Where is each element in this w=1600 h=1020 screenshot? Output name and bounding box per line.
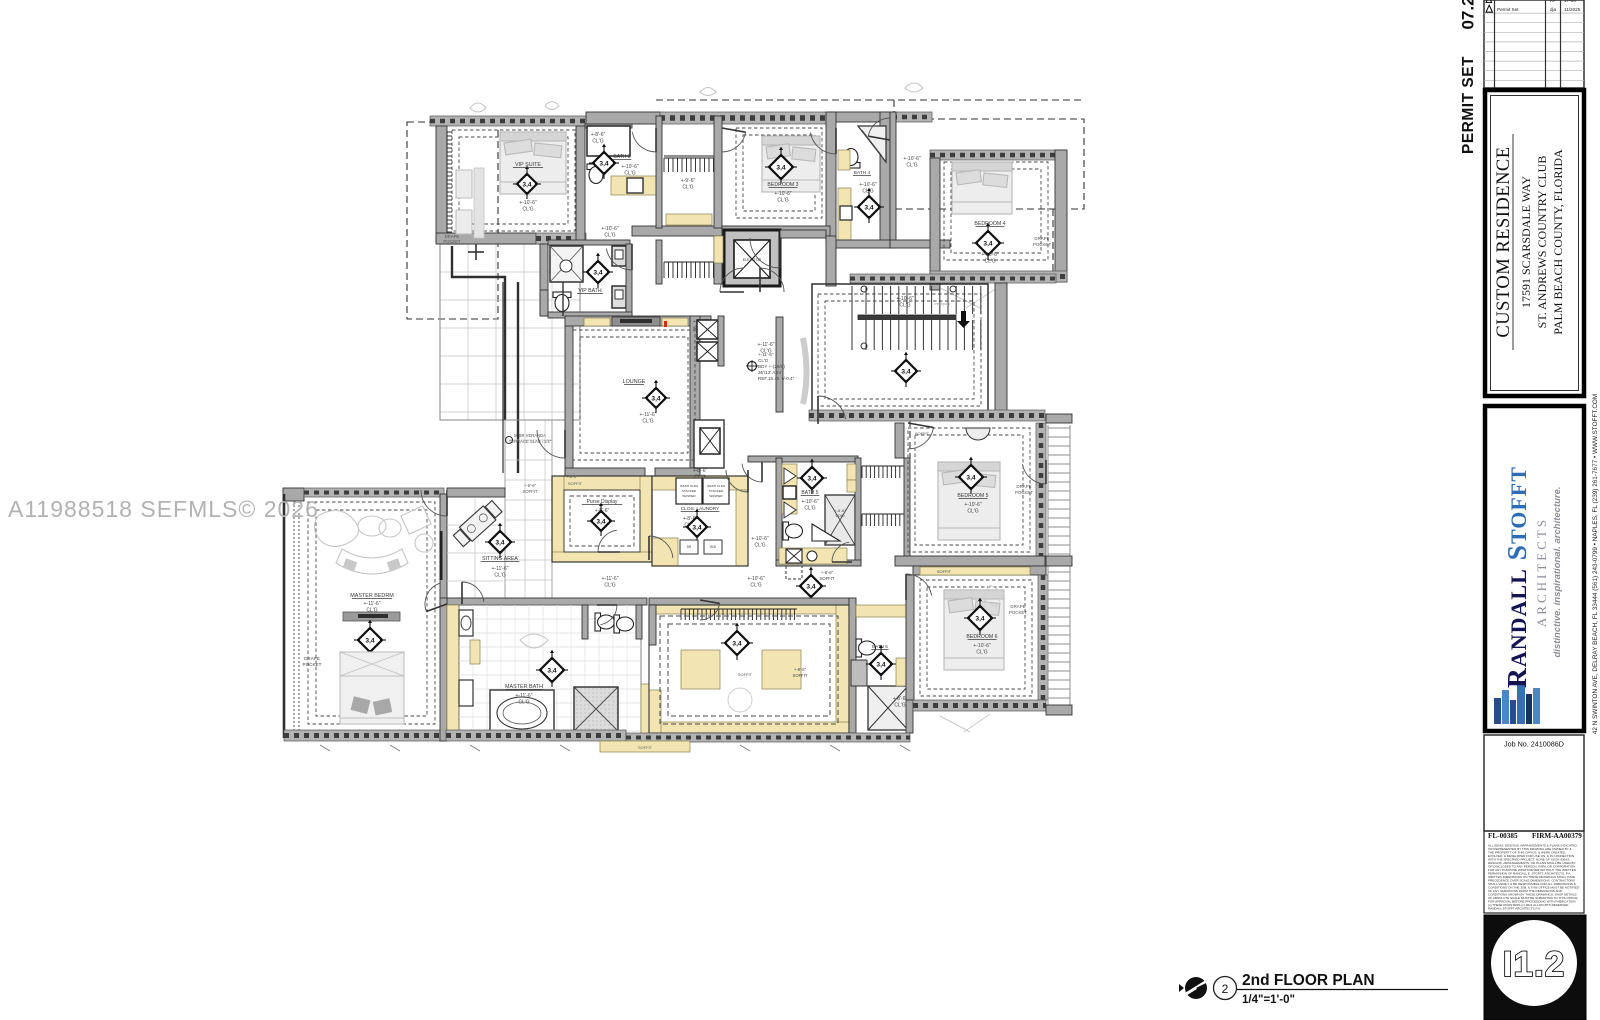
svg-text:3,4: 3,4 [876,661,885,668]
svg-text:2nd FLOOR PLAN: 2nd FLOOR PLAN [1242,972,1375,989]
svg-text:VOID: VOID [835,514,845,518]
svg-text:BEDROOM 6: BEDROOM 6 [966,634,997,640]
svg-text:CL'G: CL'G [899,303,910,309]
svg-text:WASH CLDS: WASH CLDS [680,484,698,488]
svg-text:+-10'-6": +-10'-6" [621,164,639,170]
svg-text:POCKET: POCKET [1033,242,1051,247]
svg-text:3,4: 3,4 [596,518,605,525]
svg-text:PALM BEACH COUNTY, FLORIDA: PALM BEACH COUNTY, FLORIDA [1551,149,1565,335]
svg-text:CL'G: CL'G [682,185,693,191]
svg-text:CL'G: CL'G [522,207,533,213]
svg-text:3,4: 3,4 [495,539,504,546]
svg-text:CL'G: CL'G [984,259,995,265]
svg-text:CL'G: CL'G [754,543,765,549]
svg-text:3,4: 3,4 [901,368,910,375]
svg-text:+-8'-6": +-8'-6" [893,696,908,702]
svg-text:CL'G: CL'G [494,573,505,579]
svg-text:CLOS. LAUNDRY: CLOS. LAUNDRY [681,506,720,512]
svg-text:3,4: 3,4 [522,181,531,188]
svg-text:KP: KP [1550,0,1556,3]
svg-text:07.2: 07.2 [1459,0,1478,30]
svg-text:ELEVATOR: ELEVATOR [743,258,762,262]
svg-text:SOFFIT: SOFFIT [915,431,930,436]
svg-text:+-8'-6": +-8'-6" [693,468,708,474]
svg-text:36'/12' ABV: 36'/12' ABV [758,370,782,375]
svg-text:+-10'-6": +-10'-6" [859,182,877,188]
svg-text:+-11'-6": +-11'-6" [758,342,775,348]
svg-text:BATH 6: BATH 6 [872,644,888,649]
svg-text:CL'G: CL'G [760,349,771,355]
svg-text:POCKET: POCKET [1009,610,1027,615]
svg-text:3,4: 3,4 [966,474,975,481]
svg-text:DRAPE: DRAPE [304,656,320,661]
svg-text:+-8'-6": +-8'-6" [566,474,578,479]
svg-text:+-10'-6": +-10'-6" [981,252,999,258]
svg-text:VIP BATH: VIP BATH [578,288,601,294]
svg-text:WASH CLDS: WASH CLDS [707,484,725,488]
svg-text:3,4: 3,4 [732,640,741,647]
svg-text:SOFFIT: SOFFIT [738,672,753,677]
svg-text:BEDROOM 5: BEDROOM 5 [957,493,988,499]
svg-text:3,4: 3,4 [983,240,992,247]
svg-text:POCKET: POCKET [443,239,461,244]
svg-text:BDY +-(26/8): BDY +-(26/8) [758,364,785,369]
svg-text:+-10'-6": +-10'-6" [903,156,921,162]
svg-text:+-11'-6": +-11'-6" [640,412,657,418]
svg-text:+-8'-6": +-8'-6" [794,667,807,672]
svg-text:BATH 5: BATH 5 [801,490,818,496]
svg-text:17591 SCARSDALE WAY: 17591 SCARSDALE WAY [1519,176,1533,308]
svg-text:3,4: 3,4 [547,667,556,674]
svg-text:checkpoint: checkpoint [934,302,950,306]
svg-text:SOFFIT: SOFFIT [820,576,835,581]
svg-text:FIRM-AA00379: FIRM-AA00379 [1532,832,1582,840]
svg-text:Job No. 2410086D: Job No. 2410086D [1504,740,1564,749]
svg-text:CL'G: CL'G [804,506,815,512]
svg-text:+-8'-6": +-8'-6" [524,483,537,488]
svg-text:+-8'-6": +-8'-6" [834,509,846,513]
svg-text:17-04: 17-04 [1564,0,1576,3]
svg-text:BATH 3: BATH 3 [613,154,630,160]
svg-text:REF.15.45 +/-0.4": REF.15.45 +/-0.4" [758,376,795,381]
svg-text:3,4: 3,4 [599,160,608,167]
svg-text:CL'G: CL'G [894,703,905,709]
svg-text:CL'G: CL'G [642,419,653,425]
svg-text:dja: dja [1550,7,1557,12]
svg-text:+-10'-6": +-10'-6" [519,200,537,206]
svg-text:CUSTOM RESIDENCE: CUSTOM RESIDENCE [1494,146,1514,337]
svg-text:CL'G: CL'G [976,650,987,656]
svg-text:DRAPE: DRAPE [1016,484,1031,489]
svg-text:ST. ANDREWS COUNTRY CLUB: ST. ANDREWS COUNTRY CLUB [1535,156,1549,329]
svg-text:ARCHITECTS: ARCHITECTS [1534,517,1549,627]
svg-text:3,4: 3,4 [365,637,374,644]
svg-text:+-11'-6": +-11'-6" [364,601,381,607]
svg-text:Purse Display: Purse Display [587,499,618,505]
svg-text:CL'G: CL'G [777,198,788,204]
svg-text:CL'G: CL'G [604,233,615,239]
svg-text:POCKET: POCKET [303,662,322,667]
svg-text:+-11'-6": +-11'-6" [516,693,533,699]
svg-text:+-10'-6": +-10'-6" [601,226,619,232]
svg-text:3,4: 3,4 [776,164,785,171]
svg-text:TERRACE SLAB ↓1/4": TERRACE SLAB ↓1/4" [509,439,552,444]
svg-text:FL-00385: FL-00385 [1488,832,1518,840]
svg-text:CL'G: CL'G [906,163,917,169]
svg-text:+-10'-6": +-10'-6" [774,191,792,197]
svg-text:BEDROOM 3: BEDROOM 3 [767,182,798,188]
svg-text:3,4: 3,4 [806,583,815,590]
svg-text:3,4: 3,4 [651,395,660,402]
svg-text:CL'G: CL'G [758,358,769,363]
svg-text:CL'G: CL'G [750,583,761,589]
svg-text:11/2025: 11/2025 [1564,7,1581,12]
svg-text:+-10'-6": +-10'-6" [973,643,991,649]
svg-text:MASTER BEDRM: MASTER BEDRM [350,593,394,599]
svg-text:3,4: 3,4 [975,615,984,622]
svg-text:Permit Set: Permit Set [1497,7,1519,12]
svg-text:distinctive. inspirational. ar: distinctive. inspirational. architecture… [1552,486,1563,657]
svg-text:CL'G: CL'G [592,139,603,145]
svg-text:CL'G: CL'G [518,700,529,706]
svg-text:BATH 4: BATH 4 [854,170,871,176]
svg-text:RANDALL STOFFT ARCHITECTS P.A.: RANDALL STOFFT ARCHITECTS P.A. [1488,907,1541,911]
svg-text:DRAPE: DRAPE [1010,604,1025,609]
svg-text:SOFFIT: SOFFIT [638,745,653,750]
svg-text:M.BR VERANDA: M.BR VERANDA [514,433,546,438]
svg-text:MASTER BATH: MASTER BATH [505,684,543,690]
svg-text:PERMIT SET: PERMIT SET [1460,56,1477,154]
svg-text:CL'G: CL'G [366,608,377,614]
svg-text:BEDROOM 4: BEDROOM 4 [974,221,1005,227]
svg-text:+-10'-6": +-10'-6" [801,499,819,505]
svg-text:CL'G: CL'G [624,171,635,177]
svg-text:CL'G: CL'G [967,509,978,515]
svg-text:SOFFIT: SOFFIT [793,673,808,678]
svg-text:W/D: W/D [710,545,717,549]
svg-text:VIP SUITE: VIP SUITE [515,162,541,168]
svg-text:+-8'-6": +-8'-6" [821,570,834,575]
svg-text:SOFFIT: SOFFIT [523,489,538,494]
svg-text:LOUNGE: LOUNGE [623,379,646,385]
svg-text:3,4: 3,4 [807,475,816,482]
svg-text:CL'G: CL'G [694,475,705,481]
svg-text:2: 2 [1222,982,1229,996]
svg-text:WASHER: WASHER [709,494,723,498]
svg-text:+-10'-6": +-10'-6" [964,502,982,508]
svg-text:I1.2: I1.2 [1503,945,1565,984]
svg-text:SOFFIT: SOFFIT [568,481,583,486]
svg-text:+-8'-6": +-8'-6" [591,132,606,138]
svg-text:3,4: 3,4 [692,524,701,531]
svg-text:CL'G: CL'G [604,583,615,589]
svg-text:+-9'-6": +-9'-6" [681,178,696,184]
svg-text:SOFFIT: SOFFIT [937,569,952,574]
svg-text:+-11'-6": +-11'-6" [602,576,619,582]
svg-text:3,4: 3,4 [864,204,873,211]
svg-text:+-10'-6": +-10'-6" [747,576,765,582]
svg-text:1/4"=1'-0": 1/4"=1'-0" [1242,994,1295,1006]
svg-text:DR: DR [687,545,692,549]
svg-text:POCKET: POCKET [1015,490,1033,495]
svg-text:STACKED: STACKED [682,489,697,493]
svg-text:42 N SWINTON AVE, DELRAY BEACH: 42 N SWINTON AVE, DELRAY BEACH, FL 33444… [1592,394,1599,734]
svg-text:3,4: 3,4 [593,269,602,276]
svg-text:RANDALL STOFFT: RANDALL STOFFT [1501,466,1532,688]
svg-text:STACKED: STACKED [709,489,724,493]
svg-text:CL'G: CL'G [862,189,873,195]
svg-text:A11988518 SEFMLS© 2026: A11988518 SEFMLS© 2026 [8,496,319,522]
svg-text:+-10'-6": +-10'-6" [751,536,769,542]
svg-text:DRAPE: DRAPE [1034,236,1049,241]
svg-text:WASHER: WASHER [682,494,696,498]
svg-text:+-11'-6": +-11'-6" [492,566,509,572]
